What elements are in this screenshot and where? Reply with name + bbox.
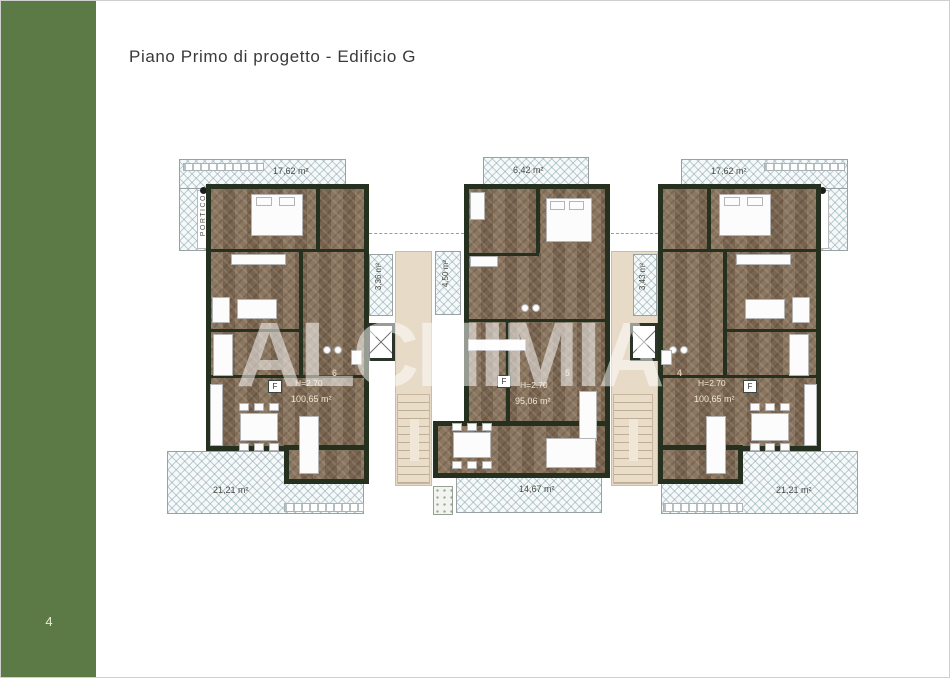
terrace-edge-strip — [663, 503, 743, 512]
wardrobe — [736, 254, 791, 265]
fridge-box: F — [743, 380, 757, 393]
ceiling-height-label: H=2.70 — [698, 378, 726, 388]
kitchen-counter — [804, 384, 817, 446]
chair — [750, 443, 760, 451]
pillow — [747, 197, 763, 206]
wood-floor — [663, 450, 738, 479]
apartment-walls-extension — [658, 445, 743, 484]
document-page: 4 Piano Primo di progetto - Edificio G 1… — [0, 0, 950, 678]
single-bed — [789, 334, 809, 376]
apartment-area-label: 100,65 m² — [694, 394, 735, 404]
pillow — [724, 197, 740, 206]
chair — [750, 403, 760, 411]
partition-wall — [723, 252, 727, 376]
bathroom-sink — [680, 346, 688, 354]
sofa — [706, 416, 726, 474]
toilet — [661, 350, 672, 365]
terrace-area-label: 17,62 m² — [711, 166, 747, 176]
partition-wall — [726, 329, 818, 332]
desk — [792, 297, 810, 323]
partition-wall — [707, 189, 711, 249]
single-bed — [745, 299, 785, 319]
terrace-edge-strip — [764, 163, 845, 171]
dining-set — [747, 403, 793, 451]
dining-table — [751, 413, 789, 441]
chair — [780, 403, 790, 411]
chair — [765, 443, 775, 451]
chair — [780, 443, 790, 451]
terrace-area-label: 21,21 m² — [776, 485, 812, 495]
chair — [765, 403, 775, 411]
unit-number: 4 — [677, 368, 682, 378]
partition-wall — [661, 249, 818, 252]
apartment-plan-right: 17,62 m² PORTICO 21,21 m² — [1, 1, 949, 677]
